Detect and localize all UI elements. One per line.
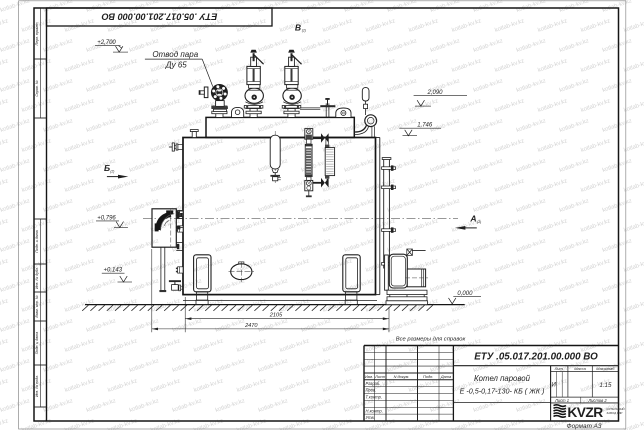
svg-text:ЕТУ .05.017.201.00.000 ВО: ЕТУ .05.017.201.00.000 ВО [102, 12, 218, 22]
svg-text:Котел паровой: Котел паровой [474, 374, 531, 383]
svg-text:Подп. и дата: Подп. и дата [35, 332, 39, 355]
svg-text:+0,143: +0,143 [104, 268, 123, 274]
svg-text:2105: 2105 [269, 313, 283, 319]
svg-text:Отвод пара: Отвод пара [152, 50, 198, 59]
svg-text:Инв. № дубл.: Инв. № дубл. [35, 267, 39, 289]
svg-text:(2): (2) [477, 220, 481, 224]
svg-text:И: И [552, 383, 557, 389]
svg-text:Т.контр.: Т.контр. [366, 395, 383, 400]
svg-text:ЗАВОД РЗР: ЗАВОД РЗР [607, 411, 623, 415]
svg-text:1,746: 1,746 [417, 122, 433, 128]
svg-text:Б: Б [104, 163, 110, 173]
svg-text:Справ. №: Справ. № [35, 80, 39, 96]
svg-text:Изм.: Изм. [365, 374, 373, 379]
svg-text:Лист: Лист [374, 374, 386, 379]
svg-text:ЕТУ .05.017.201.00.000 ВО: ЕТУ .05.017.201.00.000 ВО [474, 352, 598, 363]
svg-text:Ду 65: Ду 65 [165, 60, 187, 69]
svg-text:Листов 2: Листов 2 [587, 398, 607, 403]
svg-text:КОТЕЛЬНЫЙ: КОТЕЛЬНЫЙ [607, 407, 625, 411]
svg-text:Н.контр.: Н.контр. [366, 408, 383, 413]
svg-text:Все размеры для справок: Все размеры для справок [396, 337, 466, 343]
svg-text:Перв. примен.: Перв. примен. [35, 22, 39, 46]
svg-text:Утв.: Утв. [366, 415, 375, 420]
svg-text:Масса: Масса [574, 366, 586, 371]
svg-text:2470: 2470 [244, 323, 258, 329]
svg-text:(2): (2) [110, 169, 114, 173]
svg-text:Пров.: Пров. [366, 388, 377, 393]
svg-text:KVZR: KVZR [567, 405, 603, 420]
svg-text:В: В [295, 22, 301, 32]
svg-text:Инв. № подл.: Инв. № подл. [35, 375, 39, 397]
svg-text:1:15: 1:15 [599, 382, 612, 389]
svg-text:0,000: 0,000 [457, 291, 473, 297]
svg-text:А: А [469, 214, 476, 224]
svg-text:Подп.: Подп. [423, 374, 433, 379]
svg-text:Взам. инв. №: Взам. инв. № [35, 295, 39, 317]
svg-text:Дата: Дата [440, 374, 452, 379]
svg-text:Подп. и дата: Подп. и дата [35, 230, 39, 253]
svg-text:Лит.: Лит. [554, 366, 564, 371]
svg-text:Е -0,5-0,17-130- КБ ( ЖК ): Е -0,5-0,17-130- КБ ( ЖК ) [460, 387, 545, 396]
svg-text:Разраб.: Разраб. [366, 381, 381, 386]
svg-text:(2): (2) [302, 29, 306, 33]
svg-text:Лист 1: Лист 1 [554, 398, 569, 403]
svg-text:Формат А3: Формат А3 [567, 423, 602, 430]
svg-text:N докум.: N докум. [394, 374, 410, 379]
svg-text:Масштаб: Масштаб [596, 366, 615, 371]
